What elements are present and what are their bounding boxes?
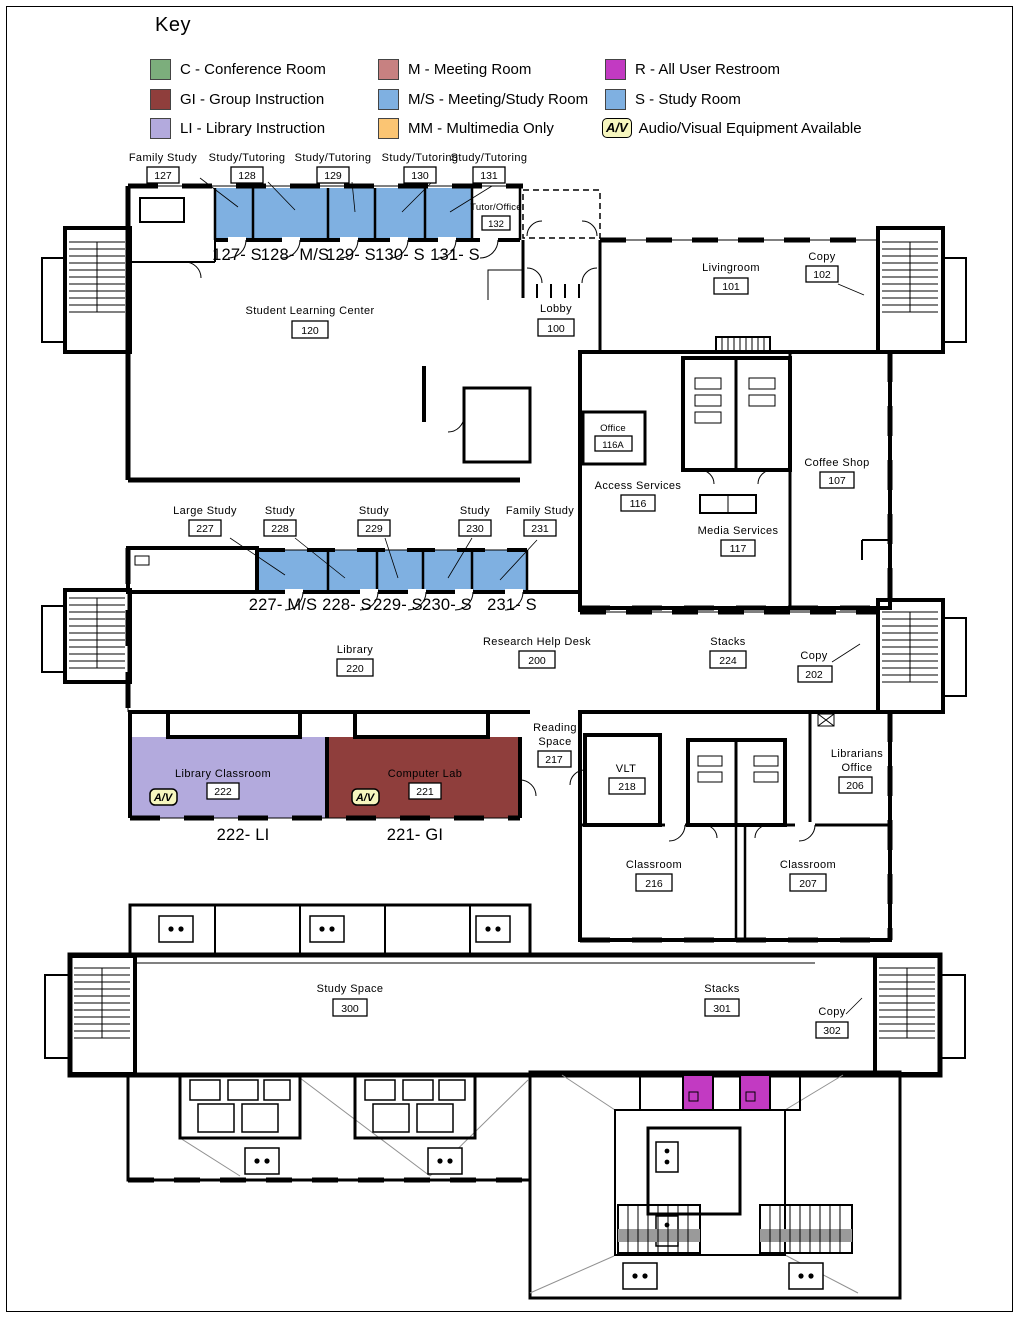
floor3-attic-hatch xyxy=(128,1072,900,1298)
room-label: Study xyxy=(460,505,490,517)
room-label: Study xyxy=(265,505,295,517)
room-label: Librarians xyxy=(831,748,883,760)
room-label: Space xyxy=(538,736,571,748)
room-label: Classroom xyxy=(626,859,682,871)
floor1-walls xyxy=(42,186,966,608)
room-number: 101 xyxy=(722,281,740,293)
room-label: Media Services xyxy=(698,525,779,537)
room-label: Computer Lab xyxy=(388,768,463,780)
red-room-type-label: 230- S xyxy=(422,596,472,614)
room-label: Research Help Desk xyxy=(483,636,591,648)
room-label: Large Study xyxy=(173,505,237,517)
room-number: 228 xyxy=(271,523,289,535)
room-number: 300 xyxy=(341,1003,359,1015)
room-label: Library Classroom xyxy=(175,768,271,780)
room-label: Study/Tutoring xyxy=(382,152,459,164)
floor1-plan: Family Study 127 Study/Tutoring 128 Stud… xyxy=(42,152,966,608)
room-number: 100 xyxy=(547,323,565,335)
room-label: Stacks xyxy=(710,636,746,648)
room-number: 221 xyxy=(416,786,434,798)
room-number: 224 xyxy=(719,655,737,667)
red-room-type-label: 127- S xyxy=(212,246,262,264)
room-label: Family Study xyxy=(129,152,197,164)
floor3-room-labels: Study Space 300 Stacks 301 Copy 302 xyxy=(317,983,862,1038)
room-number: 132 xyxy=(488,219,504,230)
red-room-type-label: 128- M/S xyxy=(261,246,330,264)
room-number: 302 xyxy=(823,1025,841,1037)
room-label: Coffee Shop xyxy=(804,457,869,469)
room-number: 301 xyxy=(713,1003,731,1015)
room-label: Study/Tutoring xyxy=(295,152,372,164)
room-label: Access Services xyxy=(595,480,682,492)
room-number: 128 xyxy=(238,170,256,182)
room-number: 129 xyxy=(324,170,342,182)
room-number: 117 xyxy=(730,543,747,555)
room-number: 102 xyxy=(813,269,831,281)
room-label: Stacks xyxy=(704,983,740,995)
room-number: 202 xyxy=(805,669,823,681)
floor3-roof-hatch xyxy=(130,905,530,955)
room-number: 229 xyxy=(365,523,383,535)
room-number: 218 xyxy=(618,781,636,793)
red-room-type-label: 229- S xyxy=(373,596,423,614)
room-number: 217 xyxy=(545,754,563,766)
room-label: Library xyxy=(337,644,374,656)
room-label: Copy xyxy=(800,650,827,662)
room-label: VLT xyxy=(616,763,637,775)
av-badge: A/V xyxy=(150,789,177,805)
room-number: 107 xyxy=(828,475,846,487)
room-number: 230 xyxy=(466,523,484,535)
room-label: Study/Tutoring xyxy=(451,152,528,164)
room-label: Office xyxy=(600,423,626,434)
room-number: 222 xyxy=(214,786,232,798)
red-room-type-label: 129- S xyxy=(326,246,376,264)
room-label: Study/Tutoring xyxy=(209,152,286,164)
red-room-type-label: 228- S xyxy=(322,596,372,614)
room-number: 120 xyxy=(301,325,319,337)
red-room-type-label: 231- S xyxy=(487,596,537,614)
floor1-red-labels: 127- S 128- M/S 129- S 130- S 131- S xyxy=(212,246,480,264)
room-number: 216 xyxy=(645,878,663,890)
room-label: Family Study xyxy=(506,505,574,517)
floor-plan-drawing: Family Study 127 Study/Tutoring 128 Stud… xyxy=(0,0,1020,1319)
floor3-plan: Study Space 300 Stacks 301 Copy 302 xyxy=(45,905,965,1298)
room-number: 207 xyxy=(799,878,817,890)
room-label: Reading xyxy=(533,722,577,734)
room-number: 116A xyxy=(602,440,624,451)
room-label: Study xyxy=(359,505,389,517)
room-label: Livingroom xyxy=(702,262,760,274)
room-label: Copy xyxy=(818,1006,845,1018)
room-number: 127 xyxy=(154,170,172,182)
red-room-type-label: 222- LI xyxy=(217,826,270,844)
red-room-type-label: 130- S xyxy=(375,246,425,264)
room-number: 116 xyxy=(630,498,647,510)
svg-text:A/V: A/V xyxy=(355,792,376,804)
floor2-plan: Large Study 227 Study 228 Study 229 Stud… xyxy=(42,505,966,940)
room-label: Copy xyxy=(808,251,835,263)
room-number: 200 xyxy=(528,655,546,667)
room-label: Student Learning Center xyxy=(245,305,374,317)
room-number: 130 xyxy=(411,170,429,182)
red-room-type-label: 131- S xyxy=(430,246,480,264)
av-badge: A/V xyxy=(352,789,379,805)
room-label: Office xyxy=(842,762,873,774)
svg-text:A/V: A/V xyxy=(153,792,174,804)
room-label: Classroom xyxy=(780,859,836,871)
room-number: 227 xyxy=(196,523,214,535)
room-number: 231 xyxy=(531,523,549,535)
room-number: 206 xyxy=(846,780,864,792)
room-label: Tutor/Office xyxy=(470,202,522,213)
red-room-type-label: 221- GI xyxy=(387,826,443,844)
red-room-type-label: 227- M/S xyxy=(249,596,318,614)
room-number: 131 xyxy=(480,170,498,182)
room-label: Study Space xyxy=(317,983,384,995)
room-label: Lobby xyxy=(540,303,572,315)
floor2-study-rooms-fill xyxy=(257,550,527,592)
room-number: 220 xyxy=(346,663,364,675)
